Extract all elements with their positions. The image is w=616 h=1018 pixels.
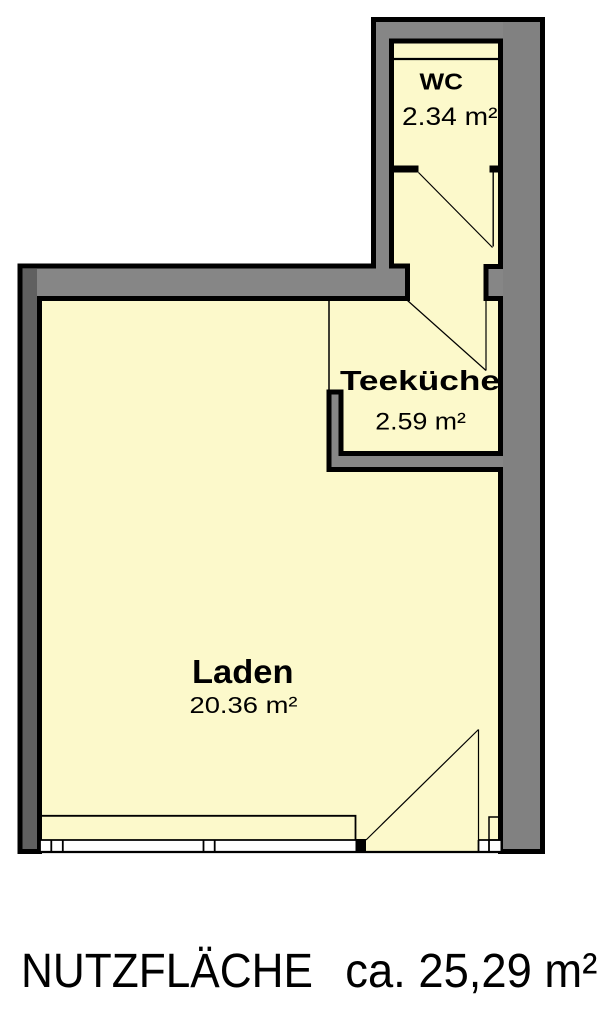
svg-text:WC: WC xyxy=(420,69,464,95)
svg-text:NUTZFLÄCHE: NUTZFLÄCHE xyxy=(21,945,313,998)
svg-text:Teeküche: Teeküche xyxy=(340,365,500,396)
svg-text:ca. 25,29 m²: ca. 25,29 m² xyxy=(345,945,597,998)
svg-text:20.36 m²: 20.36 m² xyxy=(190,692,298,718)
svg-text:Laden: Laden xyxy=(192,653,294,690)
svg-text:2.59 m²: 2.59 m² xyxy=(375,409,466,436)
svg-text:2.34 m²: 2.34 m² xyxy=(402,103,498,131)
